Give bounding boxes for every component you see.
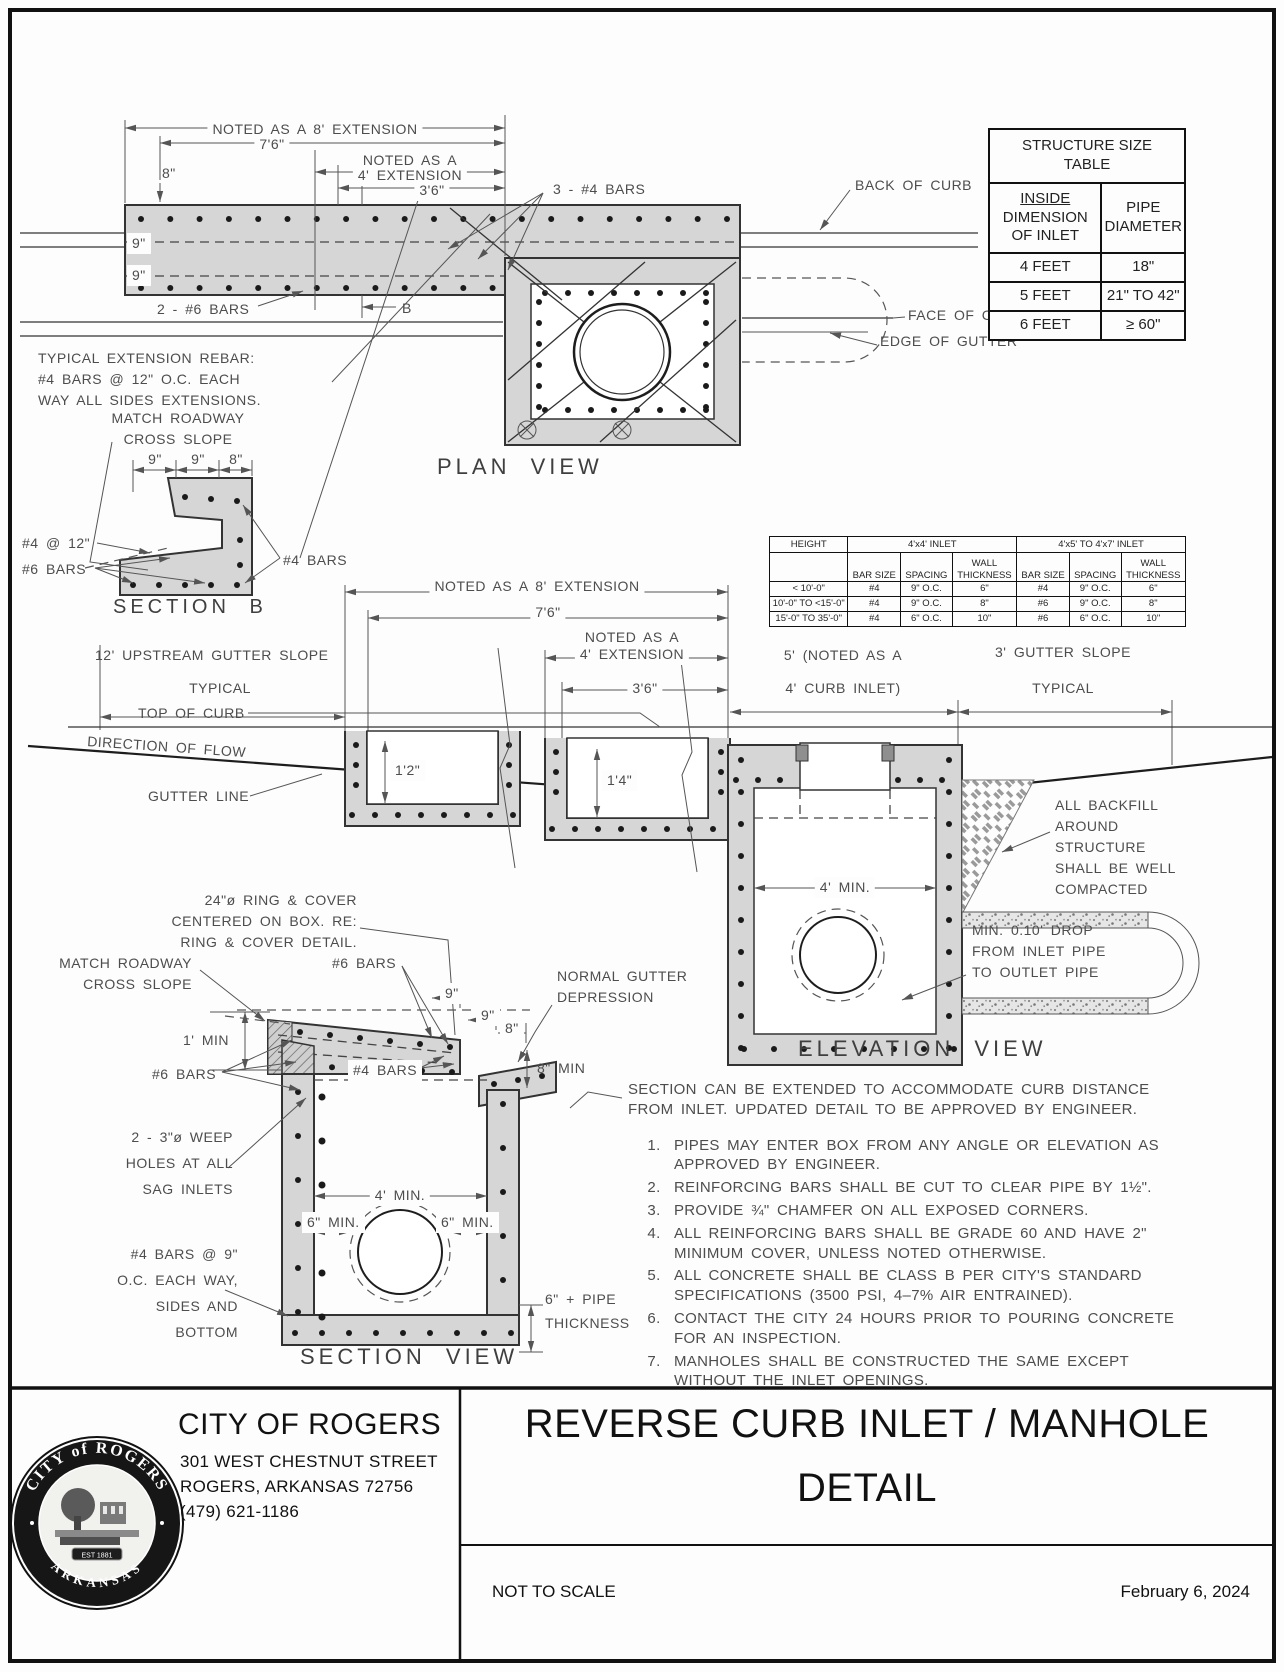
notes-list: PIPES MAY ENTER BOX FROM ANY ANGLE OR EL… [628,1136,1188,1392]
table-row: 10'-0" TO <15'-0"#49" O.C.8"#69" O.C.8" [770,597,1186,612]
sectionb-label-4-at-12: #4 @ 12" [22,533,90,554]
general-notes: SECTION CAN BE EXTENDED TO ACCOMMODATE C… [628,1080,1188,1394]
sectionb-dim-9a: 9" [148,449,162,470]
elev-backfill-note: ALL BACKFILLAROUND STRUCTURESHALL BE WEL… [1055,795,1176,900]
list-item: CONTACT THE CITY 24 HOURS PRIOR TO POURI… [668,1309,1188,1349]
sheet-date: February 6, 2024 [1121,1582,1250,1602]
org-address-line2: ROGERS, ARKANSAS 72756 [180,1477,413,1497]
list-item: ALL REINFORCING BARS SHALL BE GRADE 60 A… [668,1224,1188,1264]
table-row: BAR SIZE SPACING WALLTHICKNESS BAR SIZE … [770,553,1186,582]
sv-dim-4ft-min: 4' MIN. [370,1185,430,1206]
table-row: HEIGHT 4'x4' INLET 4'x5' TO 4'x7' INLET [770,537,1186,553]
sectionb-label-4-bars: #4 BARS [283,550,347,571]
list-item: ALL CONCRETE SHALL BE CLASS B PER CITY'S… [668,1266,1188,1306]
plan-dim-8in: 8" [162,163,176,184]
section-view-title: SECTION VIEW [300,1340,518,1373]
elev-typical-right: TYPICAL [1027,678,1099,699]
sectionb-dim-9b: 9" [191,449,205,470]
sv-label-6-bars-top: #6 BARS [332,953,396,974]
org-phone: (479) 621-1186 [180,1502,299,1522]
elev-dim-3ft-gutter: 3' GUTTER SLOPE [990,642,1136,663]
sectionb-label-6-bars: #6 BARS [22,559,86,580]
structure-table-title: STRUCTURE SIZETABLE [989,129,1185,183]
plan-extension-rebar-note: TYPICAL EXTENSION REBAR: #4 BARS @ 12" O… [38,348,261,411]
org-name: CITY OF ROGERS [178,1408,441,1442]
org-address-line1: 301 WEST CHESTNUT STREET [180,1452,438,1472]
elev-dim-5ft-1: 5' (NOTED AS A [779,645,907,666]
structure-table-col2-header: PIPE DIAMETER [1101,183,1185,253]
elev-dim-3ft6: 3'6" [627,678,662,699]
table-row: 5 FEET21" TO 42" [989,282,1185,311]
table-row: 4 FEET18" [989,253,1185,282]
list-item: MANHOLES SHALL BE CONSTRUCTED THE SAME E… [668,1352,1188,1392]
elev-dim-8ft-extension: NOTED AS A 8' EXTENSION [429,576,644,597]
list-item: PIPES MAY ENTER BOX FROM ANY ANGLE OR EL… [668,1136,1188,1176]
sv-dim-1ft-min: 1' MIN [183,1030,229,1051]
sv-match-roadway-label: MATCH ROADWAYCROSS SLOPE [42,953,192,995]
drawing-sheet: .dim{stroke:#555;stroke-width:1;fill:non… [0,0,1284,1672]
elev-dim-1ft2: 1'2" [390,760,425,781]
elev-label-gutter-line: GUTTER LINE [148,786,249,807]
plan-label-3-4-bars: 3 - #4 BARS [548,179,650,200]
sectionb-match-roadway-label: MATCH ROADWAY CROSS SLOPE [112,408,245,450]
section-b-title: SECTION B [113,592,267,622]
elev-dim-4ft-min: 4' MIN. [815,877,875,898]
plan-label-back-of-curb: BACK OF CURB [855,175,972,196]
plan-view-title: PLAN VIEW [437,450,603,483]
sv-dim-8: 8" [500,1018,524,1039]
sectionb-dim-8: 8" [229,449,243,470]
sheet-title-line2: DETAIL [797,1466,937,1511]
plan-section-cut-b: B [402,298,412,319]
sv-bars-9oc-note: #4 BARS @ 9"O.C. EACH WAY, SIDES ANDBOTT… [78,1242,238,1346]
sv-dim-6in-min-right: 6" MIN. [436,1212,499,1233]
plan-dim-7ft6: 7'6" [254,134,289,155]
elev-dim-4ft-extension-2: 4' EXTENSION [575,644,689,665]
elev-label-top-of-curb: TOP OF CURB [138,703,245,724]
table-row: 15'-0" TO 35'-0"#46" O.C.10"#66" O.C.10" [770,612,1186,627]
table-row: < 10'-0"#49" O.C.6"#49" O.C.6" [770,582,1186,597]
sv-ring-cover-note: 24"ø RING & COVERCENTERED ON BOX. RE:RIN… [105,890,357,953]
city-seal: CITY of ROGERS ARKANSAS EST 1881 [11,1437,183,1609]
inlet-rebar-table: HEIGHT 4'x4' INLET 4'x5' TO 4'x7' INLET … [769,536,1186,627]
plan-dim-8ft-extension: NOTED AS A 8' EXTENSION [207,119,422,140]
elev-dim-5ft-2: 4' CURB INLET) [780,678,905,699]
sv-dim-9a: 9" [440,983,464,1004]
sv-weep-holes-note: 2 - 3"ø WEEPHOLES AT ALLSAG INLETS [85,1125,233,1203]
sv-pipe-thickness-note: 6" + PIPETHICKNESS [545,1288,630,1336]
elev-drop-note: MIN. 0.10' DROPFROM INLET PIPETO OUTLET … [972,920,1106,983]
elev-dim-upstream: 12' UPSTREAM GUTTER SLOPE [95,645,328,666]
scale-note: NOT TO SCALE [492,1582,616,1602]
plan-dim-9in-a: 9" [127,233,151,254]
sv-dim-8in-min: 8" MIN [537,1058,585,1079]
plan-dim-4ft-extension-2: 4' EXTENSION [353,165,467,186]
sheet-title-line1: REVERSE CURB INLET / MANHOLE [525,1402,1210,1447]
plan-dim-3ft6: 3'6" [414,180,449,201]
sv-dim-9b: 9" [476,1005,500,1026]
sv-label-6-bars: #6 BARS [152,1064,216,1085]
sv-dim-6in-min-left: 6" MIN. [302,1212,365,1233]
seal-est-text: EST 1881 [81,1553,112,1560]
table-row: 6 FEET≥ 60" [989,311,1185,340]
list-item: REINFORCING BARS SHALL BE CUT TO CLEAR P… [668,1178,1188,1198]
elev-dim-7ft6: 7'6" [530,602,565,623]
structure-table-col1-header: INSIDE DIMENSION OF INLET [989,183,1101,253]
elev-dim-1ft4: 1'4" [602,770,637,791]
notes-intro: SECTION CAN BE EXTENDED TO ACCOMMODATE C… [628,1080,1188,1120]
sv-label-4-bars: #4 BARS [348,1060,422,1081]
list-item: PROVIDE ¾" CHAMFER ON ALL EXPOSED CORNER… [668,1201,1188,1221]
elev-typical-left: TYPICAL [189,678,251,699]
plan-label-2-6-bars: 2 - #6 BARS [152,299,254,320]
structure-size-table: STRUCTURE SIZETABLE INSIDE DIMENSION OF … [988,128,1186,341]
sv-normal-gutter-label: NORMAL GUTTERDEPRESSION [557,966,687,1008]
section-b-linework [85,442,280,595]
plan-dim-9in-b: 9" [127,265,151,286]
elevation-view-title: ELEVATION VIEW [798,1032,1047,1065]
